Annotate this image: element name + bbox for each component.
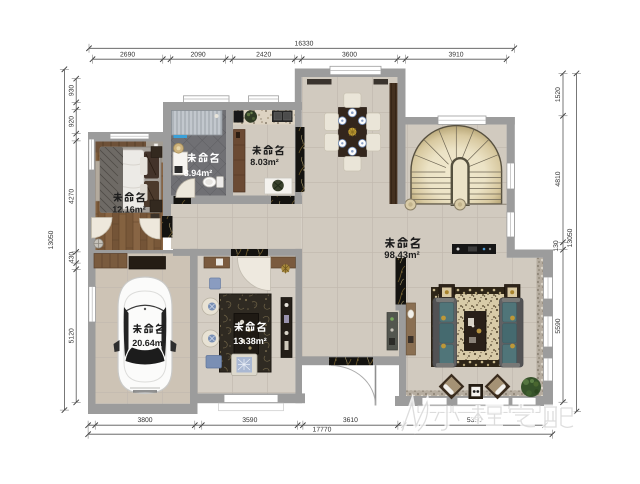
svg-text:2090: 2090 bbox=[191, 52, 206, 59]
svg-text:17770: 17770 bbox=[313, 427, 332, 434]
svg-text:20.64m²: 20.64m² bbox=[132, 338, 166, 348]
svg-text:8.03m²: 8.03m² bbox=[250, 157, 279, 167]
svg-text:13050: 13050 bbox=[567, 228, 574, 247]
svg-text:13050: 13050 bbox=[48, 230, 55, 249]
svg-text:4270: 4270 bbox=[69, 189, 76, 204]
svg-text:1520: 1520 bbox=[555, 87, 562, 102]
svg-text:3590: 3590 bbox=[242, 417, 257, 424]
svg-text:3610: 3610 bbox=[343, 417, 358, 424]
svg-text:3800: 3800 bbox=[137, 417, 152, 424]
svg-text:3600: 3600 bbox=[342, 52, 357, 59]
svg-text:430: 430 bbox=[69, 252, 76, 264]
svg-text:5120: 5120 bbox=[69, 328, 76, 343]
svg-text:4810: 4810 bbox=[555, 171, 562, 186]
svg-text:8.94m²: 8.94m² bbox=[184, 168, 213, 178]
svg-text:2420: 2420 bbox=[256, 52, 271, 59]
svg-text:3910: 3910 bbox=[448, 52, 463, 59]
svg-text:12.16m²: 12.16m² bbox=[112, 205, 146, 215]
svg-text:930: 930 bbox=[69, 85, 76, 97]
svg-text:98.43m²: 98.43m² bbox=[384, 250, 419, 261]
svg-text:920: 920 bbox=[69, 116, 76, 128]
svg-text:2690: 2690 bbox=[120, 52, 135, 59]
svg-text:16330: 16330 bbox=[295, 41, 314, 48]
svg-text:130: 130 bbox=[553, 240, 560, 252]
svg-text:13.38m²: 13.38m² bbox=[233, 336, 267, 346]
svg-text:5590: 5590 bbox=[555, 318, 562, 333]
